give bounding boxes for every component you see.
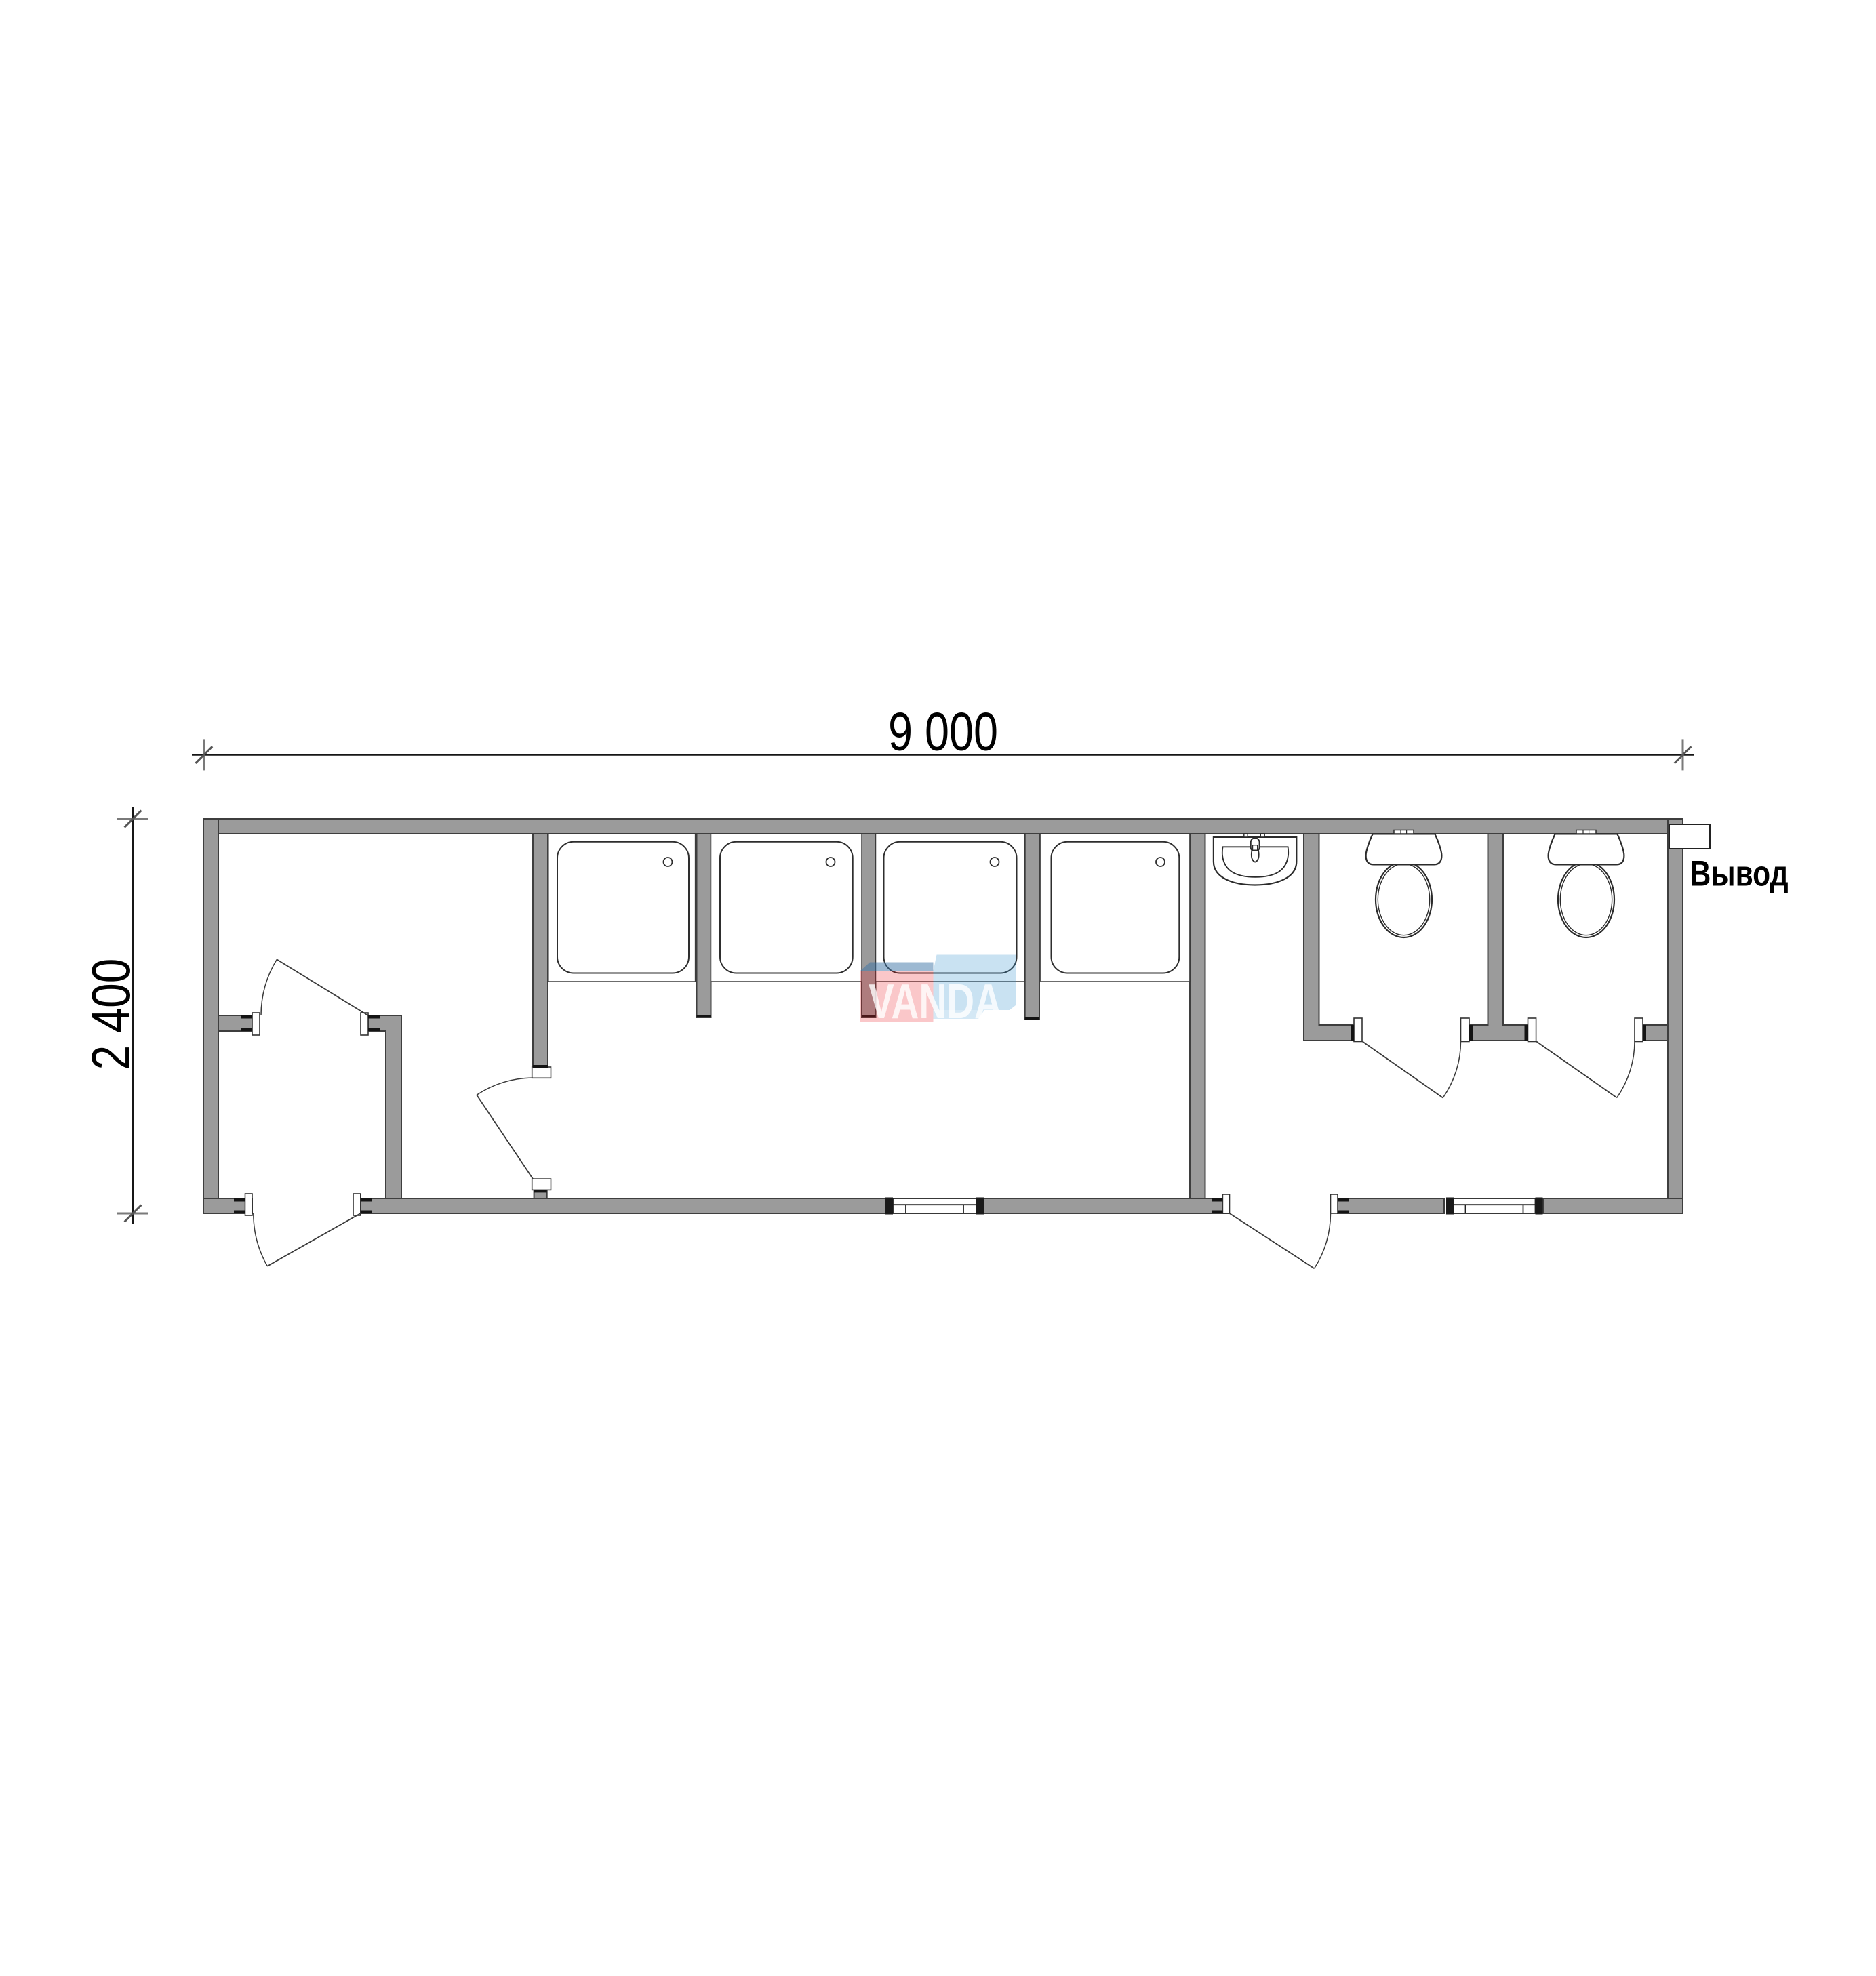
svg-text:VANDA: VANDA bbox=[869, 975, 1002, 1029]
svg-text:9 000: 9 000 bbox=[888, 702, 998, 762]
svg-text:2 400: 2 400 bbox=[81, 959, 141, 1070]
svg-text:Вывод: Вывод bbox=[1690, 854, 1789, 894]
